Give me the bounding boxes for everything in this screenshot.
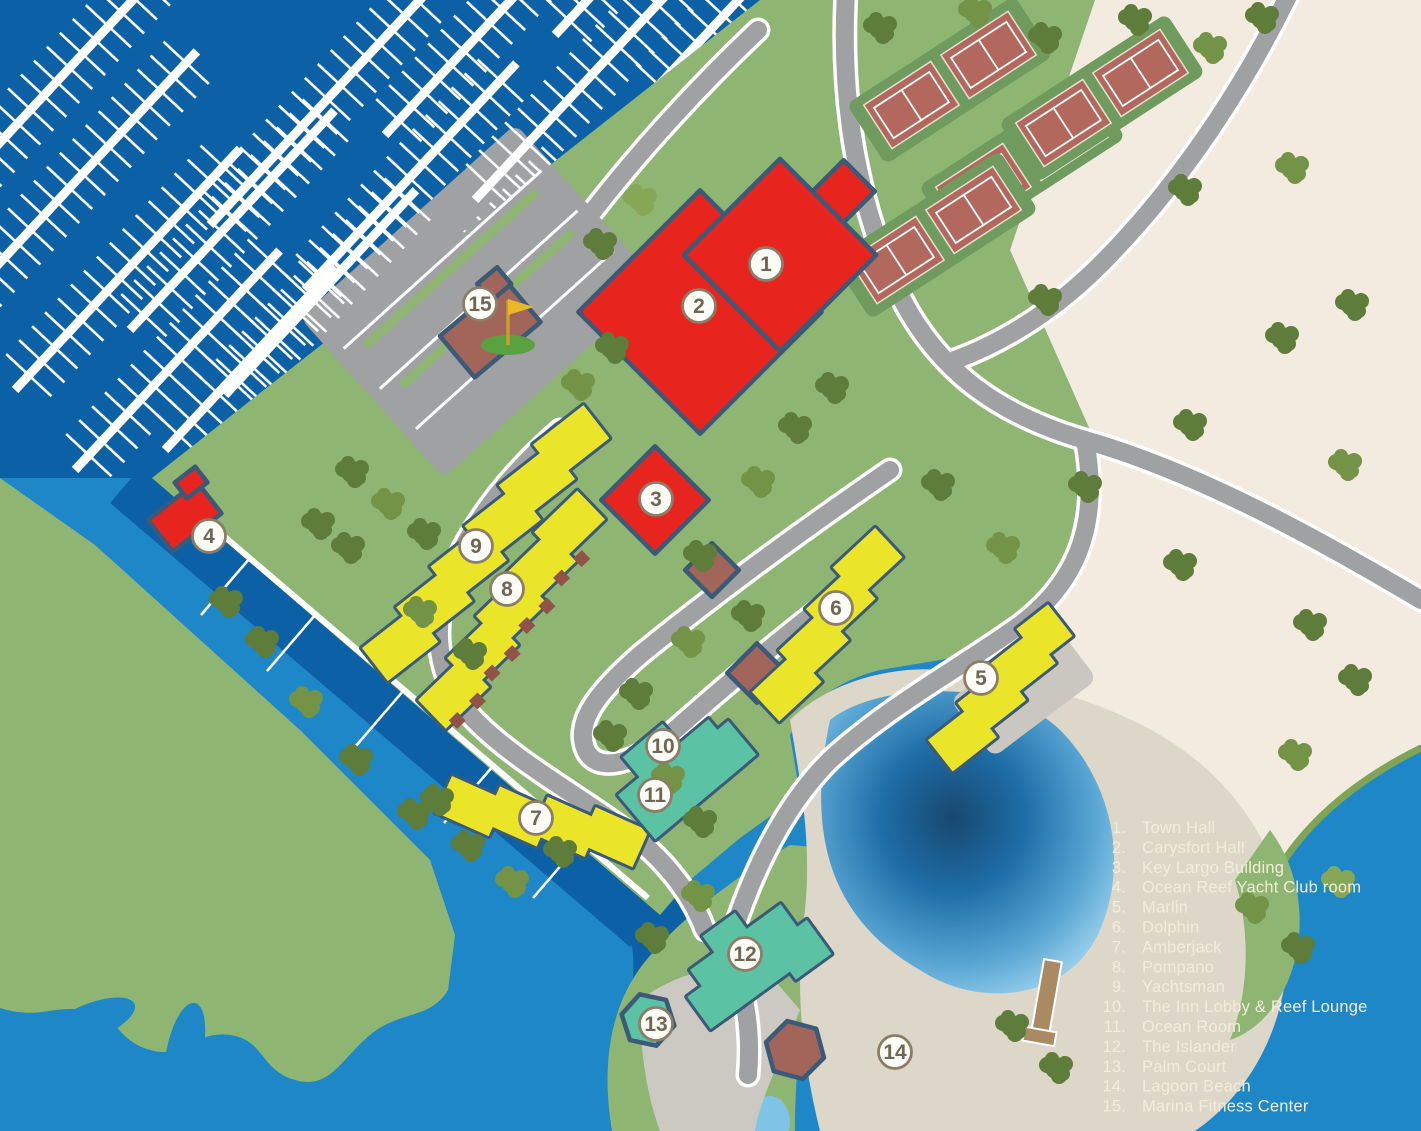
marker-12: 12 — [729, 938, 762, 971]
svg-text:4: 4 — [203, 525, 215, 548]
svg-text:The Inn Lobby & Reef Lounge: The Inn Lobby & Reef Lounge — [1142, 998, 1368, 1016]
marker-1: 1 — [750, 248, 783, 281]
marker-5: 5 — [965, 662, 998, 695]
svg-text:5.: 5. — [1112, 899, 1126, 917]
svg-text:1: 1 — [760, 253, 772, 276]
legend-item: 10.The Inn Lobby & Reef Lounge — [1102, 998, 1367, 1016]
svg-text:11: 11 — [644, 784, 667, 807]
svg-text:15: 15 — [468, 293, 492, 316]
svg-text:10: 10 — [651, 735, 674, 758]
svg-text:9: 9 — [470, 535, 482, 558]
marker-13: 13 — [640, 1008, 673, 1041]
legend-item: 6.Dolphin — [1112, 919, 1200, 937]
svg-text:14.: 14. — [1102, 1078, 1126, 1096]
marker-9: 9 — [460, 530, 493, 563]
svg-text:Amberjack: Amberjack — [1142, 938, 1222, 956]
marker-15: 15 — [464, 288, 497, 321]
svg-text:Yachtsman: Yachtsman — [1142, 978, 1225, 996]
svg-text:6.: 6. — [1112, 919, 1126, 937]
marker-6: 6 — [820, 592, 853, 625]
svg-text:13: 13 — [644, 1013, 667, 1036]
svg-text:Dolphin: Dolphin — [1142, 919, 1199, 937]
marker-4: 4 — [193, 520, 226, 553]
svg-text:Ocean Reef Yacht Club room: Ocean Reef Yacht Club room — [1142, 879, 1361, 897]
svg-text:Town Hall: Town Hall — [1142, 819, 1215, 837]
legend-item: 5.Marlin — [1112, 899, 1188, 917]
svg-text:3: 3 — [650, 488, 662, 511]
marker-7: 7 — [520, 802, 553, 835]
svg-text:11.: 11. — [1104, 1018, 1126, 1036]
svg-text:15.: 15. — [1102, 1098, 1126, 1116]
legend-item: 13.Palm Court — [1102, 1058, 1226, 1076]
resort-map-page: 1 2 3 4 5 6 7 8 9 10 11 12 13 14 15 1.To… — [0, 0, 1421, 1131]
svg-text:Palm Court: Palm Court — [1142, 1058, 1227, 1076]
svg-text:12: 12 — [733, 943, 756, 966]
svg-text:7: 7 — [530, 807, 542, 830]
svg-text:13.: 13. — [1102, 1058, 1126, 1076]
svg-text:14: 14 — [883, 1041, 907, 1064]
svg-text:12.: 12. — [1102, 1038, 1126, 1056]
svg-text:Key Largo Building: Key Largo Building — [1142, 859, 1284, 877]
svg-text:3.: 3. — [1112, 859, 1126, 877]
svg-text:Ocean Room: Ocean Room — [1142, 1018, 1241, 1036]
resort-map: 1 2 3 4 5 6 7 8 9 10 11 12 13 14 15 1.To… — [0, 0, 1421, 1131]
marker-3: 3 — [640, 483, 673, 516]
svg-text:9.: 9. — [1112, 978, 1126, 996]
legend-item: 12.The Islander — [1102, 1038, 1236, 1056]
legend-item: 11.Ocean Room — [1104, 1018, 1242, 1036]
svg-text:4.: 4. — [1112, 879, 1126, 897]
svg-text:The Islander: The Islander — [1142, 1038, 1236, 1056]
svg-text:Marina Fitness Center: Marina Fitness Center — [1142, 1098, 1309, 1116]
svg-text:Marlin: Marlin — [1142, 899, 1188, 917]
svg-text:10.: 10. — [1102, 998, 1126, 1016]
svg-text:2: 2 — [693, 295, 705, 318]
svg-text:5: 5 — [975, 667, 987, 690]
marker-10: 10 — [647, 730, 680, 763]
marker-2: 2 — [683, 290, 716, 323]
svg-text:Pompano: Pompano — [1142, 958, 1214, 976]
svg-text:6: 6 — [830, 597, 842, 620]
marker-11: 11 — [639, 779, 672, 812]
svg-text:Lagoon Beach: Lagoon Beach — [1142, 1078, 1251, 1096]
svg-text:1.: 1. — [1112, 819, 1126, 837]
marker-8: 8 — [491, 573, 524, 606]
svg-text:Carysfort Hall: Carysfort Hall — [1142, 839, 1245, 857]
svg-text:7.: 7. — [1112, 938, 1126, 956]
legend-item: 4.Ocean Reef Yacht Club room — [1112, 879, 1361, 897]
svg-text:2.: 2. — [1112, 839, 1126, 857]
legend-item: 14.Lagoon Beach — [1102, 1078, 1250, 1096]
svg-text:8.: 8. — [1112, 958, 1126, 976]
svg-text:8: 8 — [501, 578, 513, 601]
marker-14: 14 — [879, 1036, 912, 1069]
